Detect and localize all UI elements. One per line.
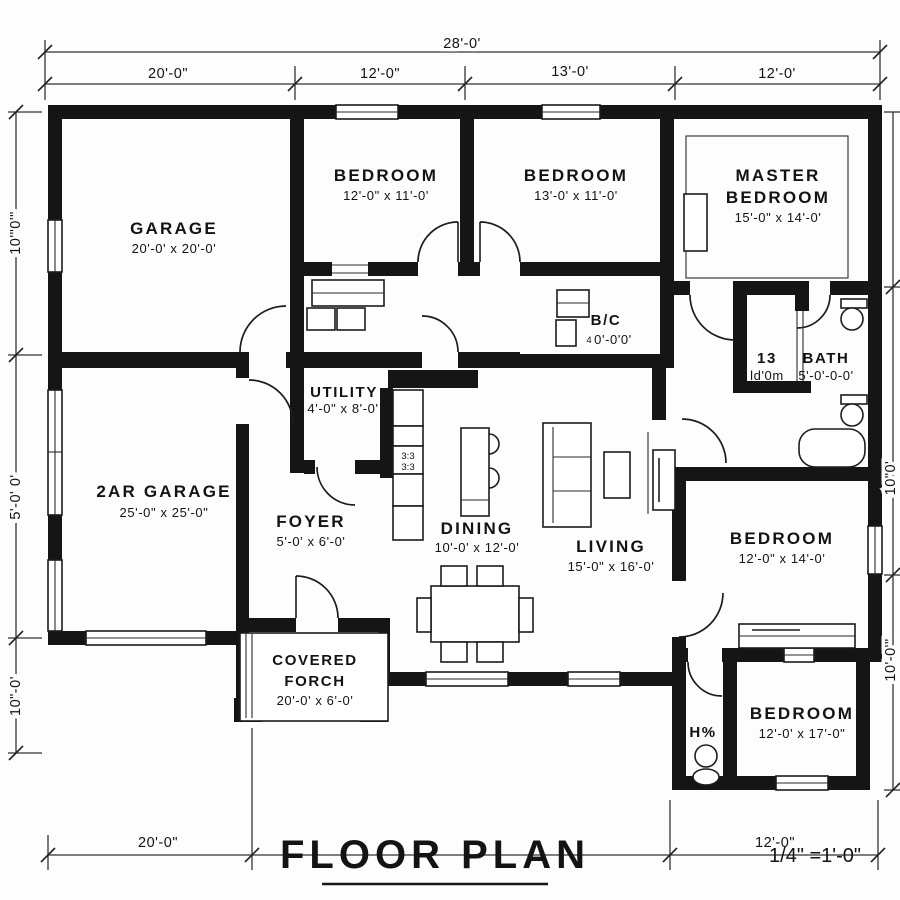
master-rug <box>684 136 848 278</box>
plan-scale: 1/4" =1'-0" <box>769 845 861 867</box>
label-bedroom4: BEDROOM <box>750 704 854 723</box>
label-porch-1: COVERED <box>272 652 357 669</box>
label-halfbath: H% <box>689 724 716 741</box>
dimension-top: 28'-0' 20'-0" 12'-0" 13'-0' 12'-0' <box>38 36 887 100</box>
window-bedroom4-bottom <box>776 776 828 790</box>
label-porch-dims: 20'-0' x 6'-0' <box>277 693 354 708</box>
dim-top-2: 12'-0" <box>360 66 400 82</box>
label-foyer-dims: 5'-0' x 6'-0' <box>276 534 345 549</box>
wardrobe-bedroom1 <box>312 280 384 306</box>
label-master-2: BEDROOM <box>726 188 830 207</box>
kitchen-island <box>461 428 499 516</box>
plan-title: FLOOR PLAN <box>280 833 590 877</box>
coffee-table <box>604 452 630 498</box>
label-closet13-dims: ld'0m <box>750 368 784 383</box>
door-master <box>690 295 735 340</box>
label-bath-dims: 5'-0'-0-0' <box>798 368 853 383</box>
label-utility: UTILITY <box>310 384 378 401</box>
label-garage2: 2AR GARAGE <box>96 482 231 501</box>
dim-left-3: 10"-0' <box>8 676 24 716</box>
label-bedroom2-dims: 13'-0' x 11'-0' <box>534 188 618 203</box>
door-garage <box>240 306 286 352</box>
label-dining-dims: 10'-0' x 12'-0' <box>435 540 520 555</box>
sofa <box>543 423 591 527</box>
label-garage2-dims: 25'-0" x 25'-0" <box>120 505 209 520</box>
label-bedroom1-dims: 12'-0" x 11'-0' <box>343 188 429 203</box>
dim-left-2: 5'-0' 0' <box>8 474 24 519</box>
door-hall-bath <box>682 419 726 463</box>
label-garage-dims: 20'-0' x 20'-0' <box>132 241 217 256</box>
door-bedroom2 <box>480 222 520 262</box>
toilet-halfbath <box>693 745 719 785</box>
door-halfbath <box>688 662 722 696</box>
label-bedroom3-dims: 12'-0" x 14'-0' <box>739 551 826 566</box>
dim-top-4: 12'-0' <box>758 66 796 82</box>
closet-opening-bedroom1 <box>332 265 368 273</box>
dim-top-1: 20'-0" <box>148 66 188 82</box>
window-living-front-1 <box>426 672 508 686</box>
stove-label-2: 3:3 <box>401 462 414 473</box>
label-bc: B/C <box>591 312 622 329</box>
label-closet13: 13 <box>757 350 777 367</box>
label-bedroom2: BEDROOM <box>524 166 628 185</box>
dimension-left: 10'"0'" 5'-0' 0' 10"-0' <box>8 105 42 760</box>
bath-sink-2 <box>841 395 867 426</box>
utility-appliances <box>307 308 365 330</box>
door-utility <box>317 467 355 505</box>
stove-label-1: 3:3 <box>401 451 414 462</box>
window-top-bedroom1 <box>336 105 398 119</box>
window-garage2-left-1 <box>48 390 62 515</box>
label-bedroom1: BEDROOM <box>334 166 438 185</box>
window-bedroom3-right <box>868 526 882 574</box>
bc-furniture <box>556 290 589 346</box>
label-bath: BATH <box>803 350 850 367</box>
tv-console <box>648 432 675 514</box>
label-bedroom3: BEDROOM <box>730 529 834 548</box>
kitchen-counter: 3:3 3:3 <box>393 390 423 540</box>
door-garage2 <box>249 380 293 424</box>
label-living-dims: 15'-0" x 16'-0' <box>568 559 655 574</box>
dim-top-3: 13'-0' <box>551 64 589 80</box>
closet-bedroom3 <box>739 624 855 648</box>
label-master-1: MASTER <box>736 166 821 185</box>
window-living-front-2 <box>568 672 620 686</box>
window-garage2-bottom <box>86 631 206 645</box>
window-garage-left <box>48 220 62 272</box>
window-top-bedroom2 <box>542 105 600 119</box>
window-bedroom4-top <box>784 648 814 662</box>
dim-right-2: 10'-0'" <box>883 638 899 681</box>
window-garage2-left-2 <box>48 560 62 631</box>
floor-plan-page: 3:3 3:3 <box>0 0 900 900</box>
door-bedroom3 <box>679 593 723 637</box>
dim-left-1: 10'"0'" <box>8 211 24 255</box>
label-foyer: FOYER <box>276 512 346 531</box>
label-garage: GARAGE <box>130 219 218 238</box>
dim-bottom-1: 20'-0" <box>138 835 178 851</box>
dim-right-1: 10"0' <box>883 461 899 496</box>
dimension-right: 10"0' 10'-0'" <box>883 112 900 797</box>
label-utility-dims: 4'-0" x 8'-0' <box>307 401 378 416</box>
label-master-dims: 15'-0" x 14'-0' <box>735 210 822 225</box>
bathtub <box>799 429 865 467</box>
door-bedroom1 <box>418 222 458 262</box>
label-dining: DINING <box>441 519 514 538</box>
label-bc-dims: 0'-0'0' <box>594 332 632 347</box>
dim-overall-top: 28'-0' <box>443 36 481 52</box>
label-bedroom4-dims: 12'-0' x 17'-0" <box>759 726 846 741</box>
door-front-entry <box>296 576 338 618</box>
dining-table <box>417 566 533 662</box>
door-hall-dining <box>422 316 458 352</box>
bath-sink-1 <box>841 299 867 330</box>
floor-plan-drawing: 3:3 3:3 <box>0 0 900 900</box>
label-bc-note: 4 <box>586 335 591 346</box>
label-living: LIVING <box>576 537 646 556</box>
label-porch-2: FORCH <box>284 673 345 690</box>
